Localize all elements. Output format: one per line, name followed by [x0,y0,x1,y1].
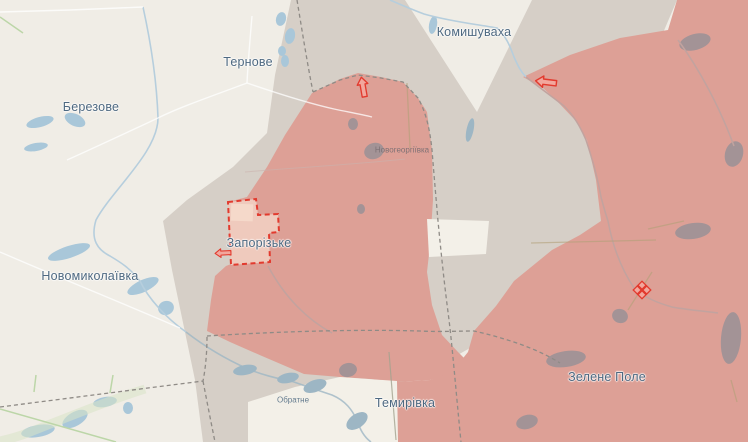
place-label-ternove: Тернове [223,55,273,69]
field-patch [427,219,489,257]
place-label-zelene-pole: Зелене Поле [568,370,646,384]
place-label-zaporizke: Запорізьке [227,236,292,250]
place-label-novoheorhiivka: Новогеоргіївка [375,146,429,155]
place-label-berezove: Березове [63,100,119,114]
place-label-obratne: Обратне [277,396,309,405]
place-label-komyshuvakha: Комишуваха [437,25,512,39]
place-label-temyrivka: Темирівка [375,396,435,410]
map-canvas[interactable]: Тернове Комишуваха Березове Новомиколаїв… [0,0,748,442]
place-label-novomykolaivka: Новомиколаївка [41,269,138,283]
